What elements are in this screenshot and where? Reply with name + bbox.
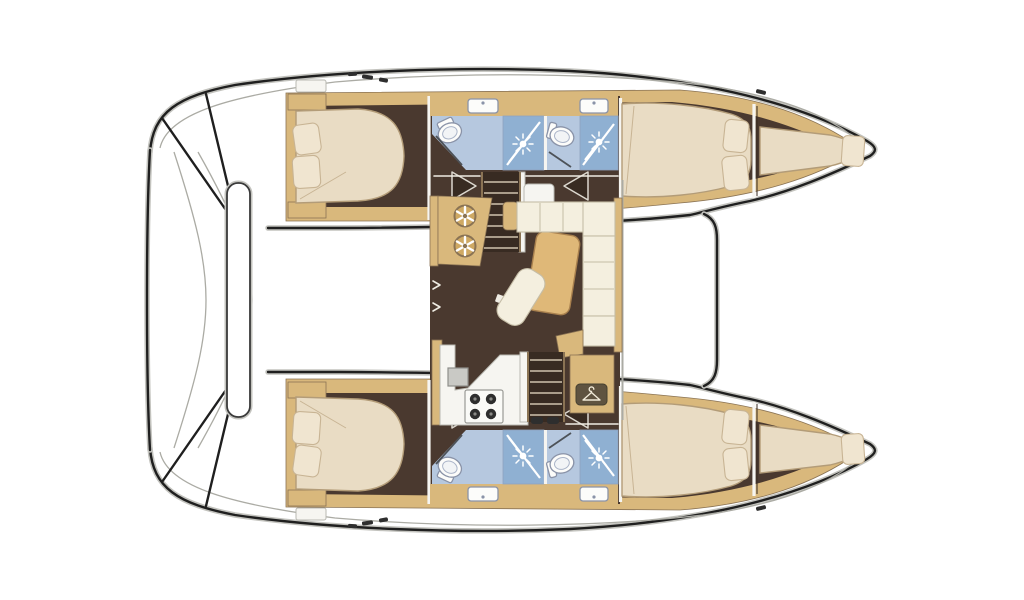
pillow xyxy=(292,155,321,189)
wheel-dial-icon xyxy=(455,206,476,227)
sofa-cushions-top xyxy=(517,202,587,232)
crossbeam-shadow xyxy=(704,214,717,386)
sofa-cushions-side xyxy=(583,236,615,316)
faucet-dot xyxy=(481,101,484,104)
sofa-armrest xyxy=(503,202,518,230)
sink-icon xyxy=(468,99,498,113)
deck-hatch xyxy=(296,80,326,92)
wheel-dial-icon xyxy=(455,236,476,257)
pillow xyxy=(721,155,749,191)
pillow xyxy=(841,135,865,166)
nav-desk-side xyxy=(430,196,438,266)
stair-trim xyxy=(520,352,528,422)
sofa-corner-cushion xyxy=(583,202,615,236)
cockpit-bench xyxy=(227,183,250,417)
stair-well xyxy=(528,352,564,422)
floor-plan-canvas: Catamaran interior layout floor plan (to… xyxy=(0,0,1024,600)
bedside-cabinet xyxy=(288,94,326,110)
pillow xyxy=(292,122,322,155)
pillow xyxy=(722,119,749,153)
sofa-end-cushion xyxy=(583,316,615,346)
bedside-cabinet xyxy=(288,202,326,218)
wardrobe xyxy=(570,355,614,413)
galley-sink xyxy=(448,368,468,386)
stair-foot-fitting xyxy=(531,417,543,424)
stove-icon xyxy=(465,390,503,423)
sink-icon xyxy=(580,99,608,113)
faucet-dot xyxy=(592,101,595,104)
catamaran-floor-plan xyxy=(0,0,1024,600)
stair-foot-fitting xyxy=(547,417,559,424)
companionway-stairs xyxy=(520,352,564,424)
